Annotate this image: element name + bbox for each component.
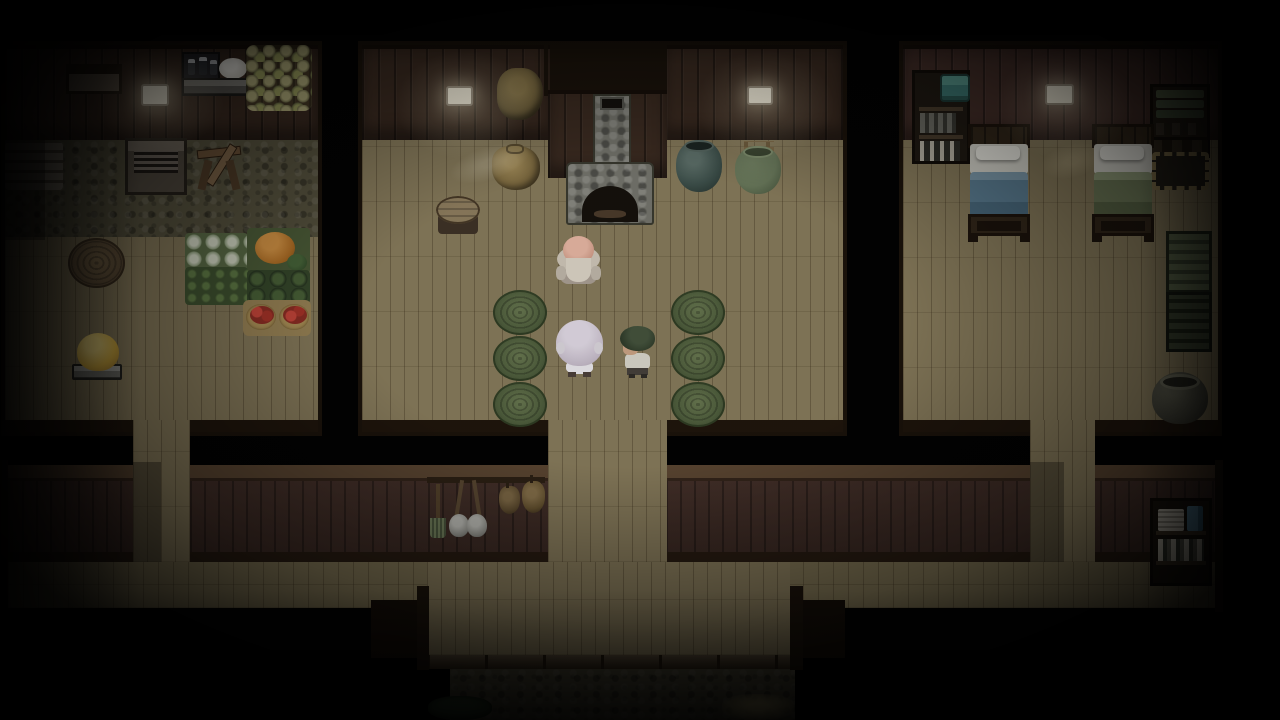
green-slat-cabinet xyxy=(1166,231,1212,293)
exit-doorpost-left xyxy=(417,586,429,670)
shovel xyxy=(463,480,491,540)
pouch-string xyxy=(506,478,509,488)
firewood-pile xyxy=(5,142,63,190)
hanging-pouch xyxy=(522,481,545,513)
tomato-baskets xyxy=(243,300,311,336)
bed-footboard xyxy=(968,214,1030,236)
bed-blanket-green xyxy=(1094,172,1152,216)
corridor-bedroom[interactable] xyxy=(1030,420,1095,562)
jar-mouth xyxy=(743,146,773,158)
jar-mouth xyxy=(684,140,714,152)
npc-child[interactable] xyxy=(617,326,658,378)
chimney-opening xyxy=(600,97,624,110)
bottle-icon xyxy=(188,59,195,75)
elder-man-arm xyxy=(591,266,601,280)
hallway-east-end-post xyxy=(1215,460,1223,612)
hanging-onions xyxy=(246,45,312,111)
shelf-board xyxy=(1156,531,1206,535)
dark-jar xyxy=(676,140,722,192)
npc-elder-man[interactable] xyxy=(556,236,601,288)
stove-bottle-rack xyxy=(182,52,220,80)
cauldron-rim xyxy=(1160,374,1200,390)
bed-leg xyxy=(1020,234,1030,242)
kitchen-south-lintel-west xyxy=(5,420,133,432)
exit-sidewall-left xyxy=(371,600,417,658)
hallway-west-end-post xyxy=(0,460,8,610)
tomatoes xyxy=(250,306,274,324)
teal-chest xyxy=(940,74,970,102)
kitchen-south-lintel-east xyxy=(190,420,318,432)
shelf-books xyxy=(1158,539,1204,561)
grain-sack xyxy=(492,146,540,190)
stove-counter xyxy=(182,78,248,96)
elder-man-arm xyxy=(556,266,566,280)
green-mat xyxy=(493,382,547,427)
bottle-icon xyxy=(199,57,207,75)
sack-tie xyxy=(506,144,524,154)
bed-footboard xyxy=(1092,214,1154,236)
mainroom-lamp-west xyxy=(446,86,473,106)
chimney-alcove-post-right xyxy=(663,41,667,96)
shovel-head xyxy=(467,514,487,537)
elder-woman-foot xyxy=(583,372,591,377)
corridor-kitchen[interactable] xyxy=(133,420,190,562)
stone-hearth xyxy=(125,138,187,195)
sawhorse-leg xyxy=(225,159,240,190)
green-mat xyxy=(671,382,725,427)
child-shoe xyxy=(629,374,635,378)
wicker-mat-weave xyxy=(71,241,122,285)
bed-leg xyxy=(968,234,978,242)
exit-fence-rail xyxy=(427,655,790,669)
pouch-string xyxy=(530,475,533,483)
bedroom-south-lintel-east xyxy=(1095,420,1218,432)
green-squash xyxy=(287,254,307,271)
hanging-pouch xyxy=(499,486,520,514)
bread-loaf xyxy=(77,333,119,371)
footboard-panel xyxy=(1101,221,1145,231)
exit-sidewall-right xyxy=(803,600,845,658)
bed-blanket-blue xyxy=(970,172,1028,216)
child-shoe xyxy=(641,374,647,378)
folded-blanket xyxy=(1156,90,1204,98)
exit-doorpost-right xyxy=(790,586,803,670)
alcove-shelf xyxy=(66,64,122,94)
elder-woman-hand xyxy=(594,342,603,354)
npc-elder-woman[interactable] xyxy=(556,320,603,378)
elder-man-beard xyxy=(566,258,591,282)
shelf-books xyxy=(920,113,956,133)
shelf-drawer xyxy=(1156,123,1204,135)
sawhorse xyxy=(195,142,243,194)
hay-bundle xyxy=(497,68,543,120)
corridor-mainroom[interactable] xyxy=(548,420,667,562)
bedroom-lamp xyxy=(1045,84,1074,105)
round-stool xyxy=(436,196,480,236)
elder-woman-hand xyxy=(556,342,565,354)
dry-grass-tuft xyxy=(722,694,794,720)
folded-blanket xyxy=(1156,100,1204,108)
bush xyxy=(428,696,492,720)
blue-book xyxy=(1187,506,1203,531)
green-mat xyxy=(493,336,547,381)
broom-handle xyxy=(436,484,440,520)
fireplace xyxy=(566,162,654,225)
mainroom-lamp-east xyxy=(747,86,773,105)
bed-blue xyxy=(968,124,1030,242)
game-viewport[interactable] xyxy=(0,0,1280,720)
cauldron xyxy=(1152,372,1208,424)
bed-pillow xyxy=(1100,146,1144,160)
green-mat xyxy=(493,290,547,335)
shelf-board xyxy=(919,107,963,111)
bed-green xyxy=(1092,124,1154,242)
melon-basket xyxy=(247,270,310,304)
tomatoes xyxy=(283,306,307,324)
woven-basket xyxy=(1152,152,1209,190)
kitchen-lamp xyxy=(141,84,169,106)
elder-woman-foot xyxy=(568,372,576,377)
wicker-mat xyxy=(68,238,125,288)
stool-top xyxy=(436,196,480,224)
blanket-shelf xyxy=(1150,84,1210,140)
hallway-bookshelf xyxy=(1150,498,1212,586)
green-mat xyxy=(671,336,725,381)
dark-slat-cabinet xyxy=(1166,292,1212,352)
bed-leg xyxy=(1092,234,1102,242)
green-jar xyxy=(735,146,781,194)
fire-logs xyxy=(594,210,626,218)
green-mat xyxy=(671,290,725,335)
bedroom-south-lintel-west xyxy=(903,420,1030,432)
chimney-alcove-post-left xyxy=(544,41,548,96)
paper-stack xyxy=(1158,509,1184,531)
bottle-icon xyxy=(210,60,217,75)
fireplace-arch xyxy=(582,186,638,222)
hearth-grate xyxy=(134,151,178,173)
bed-pillow xyxy=(976,146,1020,160)
shelf-books xyxy=(920,141,960,161)
greens-basket xyxy=(185,267,248,305)
broom-head xyxy=(430,518,446,538)
footboard-panel xyxy=(977,221,1021,231)
shelf-board xyxy=(1156,561,1206,565)
pumpkin-basket xyxy=(247,228,310,274)
cabbage-basket xyxy=(185,233,248,271)
folded-blanket xyxy=(1156,110,1204,118)
bed-leg xyxy=(1144,234,1154,242)
child-hair xyxy=(620,326,655,351)
exit-passage-floor[interactable] xyxy=(427,562,790,655)
white-dough-pot xyxy=(219,58,247,79)
shelf-board xyxy=(919,135,963,139)
